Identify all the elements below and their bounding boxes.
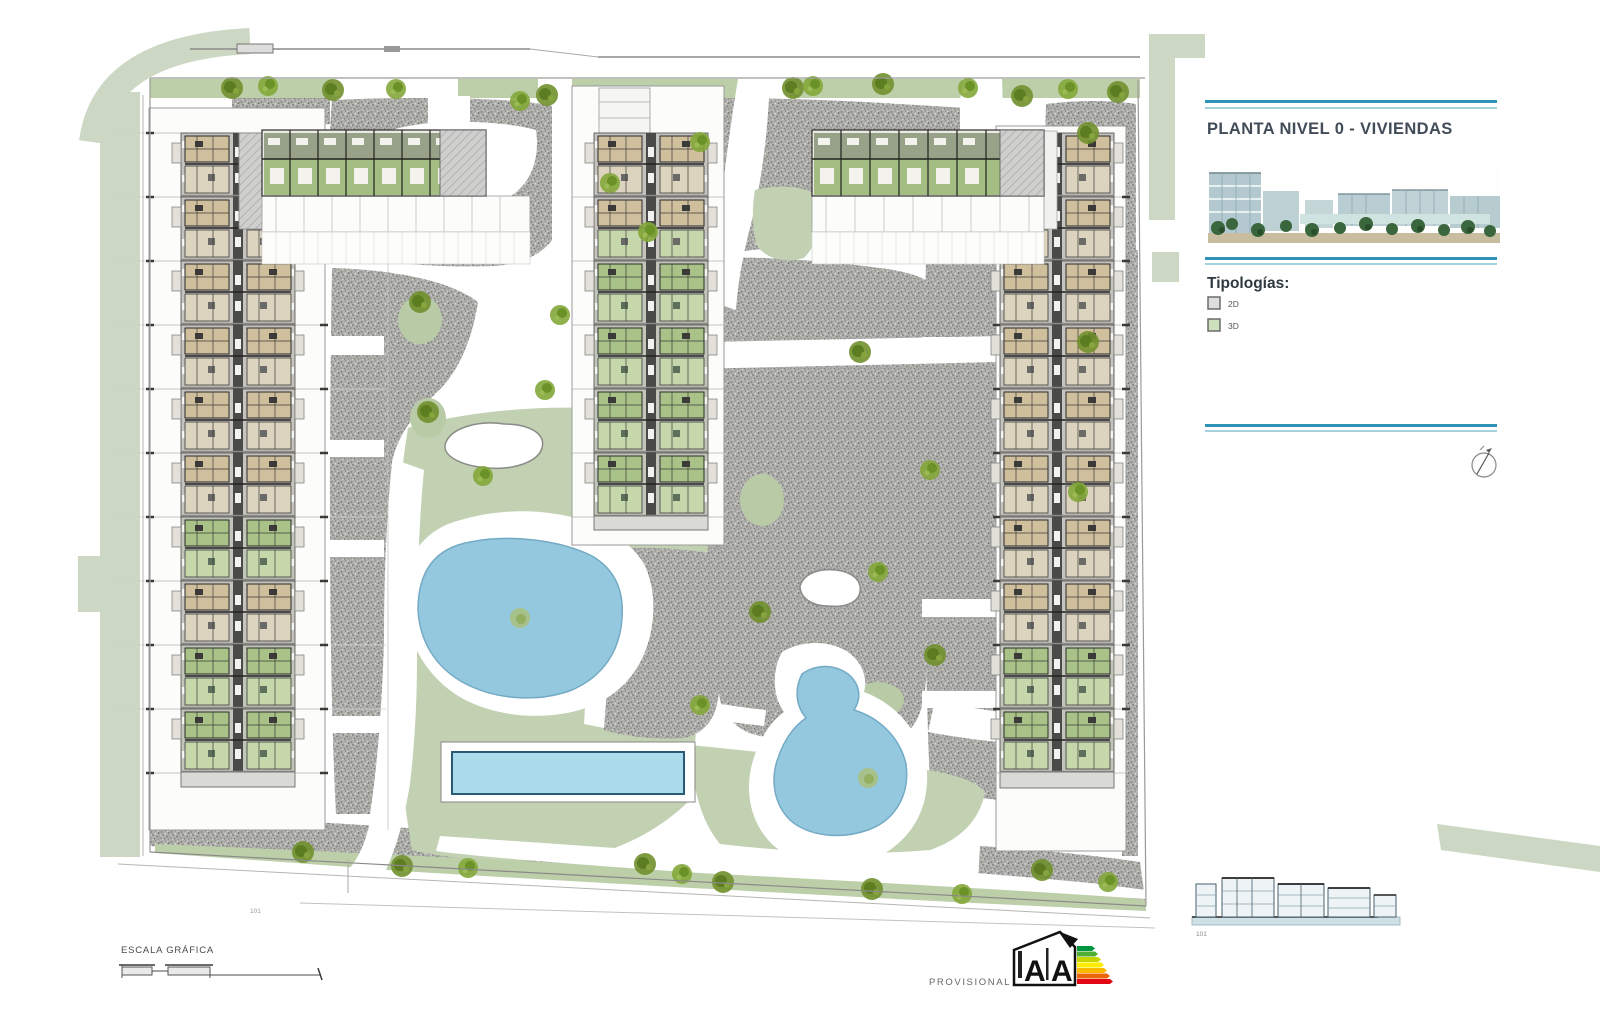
svg-text:2D: 2D bbox=[1228, 299, 1239, 309]
svg-text:ESCALA GRÁFICA: ESCALA GRÁFICA bbox=[121, 945, 214, 956]
svg-text:PLANTA NIVEL 0 - VIVIENDAS: PLANTA NIVEL 0 - VIVIENDAS bbox=[1207, 120, 1453, 138]
svg-text:A: A bbox=[1024, 955, 1046, 988]
svg-text:3D: 3D bbox=[1228, 321, 1239, 331]
svg-text:A: A bbox=[1051, 955, 1073, 988]
svg-text:Tipologías:: Tipologías: bbox=[1207, 275, 1289, 292]
svg-text:101: 101 bbox=[1196, 931, 1207, 938]
svg-text:101: 101 bbox=[250, 908, 261, 915]
svg-text:PROVISIONAL: PROVISIONAL bbox=[929, 977, 1011, 988]
